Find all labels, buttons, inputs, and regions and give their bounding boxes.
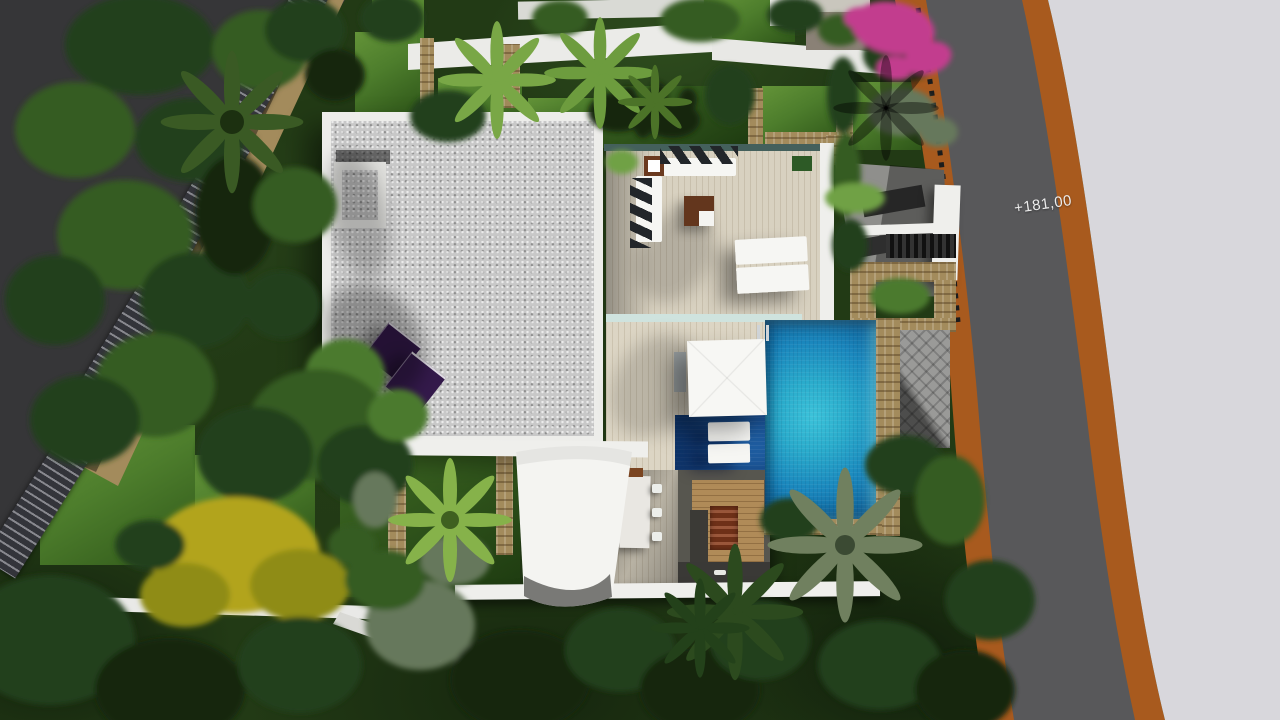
pool-lounger	[708, 422, 750, 442]
stone-pillar	[503, 44, 520, 108]
pool-lounger	[708, 444, 750, 464]
counter-handle	[714, 570, 726, 575]
neighbour-terrace	[806, 0, 870, 50]
sofa-cushions	[630, 178, 652, 248]
daybed-pair	[735, 236, 810, 294]
neighbour-wall	[518, 0, 704, 20]
courtyard-pillar	[388, 455, 406, 595]
planter-wall	[934, 280, 956, 322]
slatted-structure	[886, 234, 956, 258]
aerial-villa-render: +181,00	[0, 0, 1280, 720]
kitchen-counter	[690, 510, 708, 566]
sofa-cushions	[660, 146, 738, 164]
terrace-side-wall	[820, 143, 834, 322]
parasol-mat	[674, 352, 686, 392]
stone-pillar	[420, 38, 434, 110]
swimming-pool	[765, 320, 880, 521]
daybed	[736, 264, 809, 294]
stairs-down	[710, 506, 738, 550]
shade-sail	[498, 440, 658, 620]
counter-handle	[730, 570, 742, 575]
pool-coping	[876, 318, 900, 536]
planter-box	[792, 156, 812, 171]
parasol	[687, 339, 767, 417]
daybed	[735, 236, 808, 265]
planter-wall	[850, 280, 876, 322]
pool-coping	[764, 519, 882, 535]
stone-pillar	[748, 88, 763, 146]
planter-wall	[850, 262, 956, 282]
coffee-table-tray	[699, 211, 714, 226]
